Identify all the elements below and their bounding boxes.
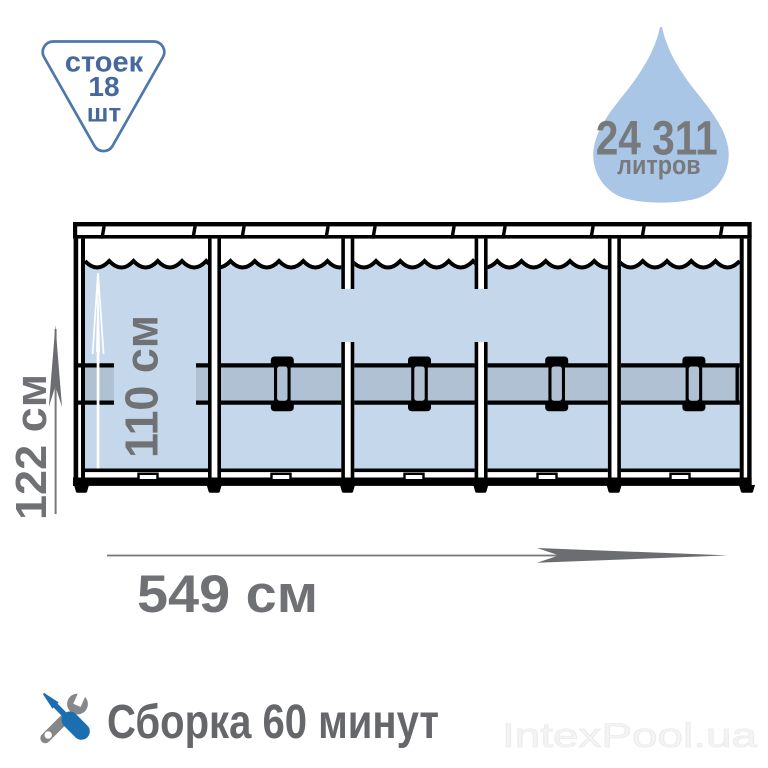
- svg-text:IntexPool.ua: IntexPool.ua: [502, 717, 757, 755]
- svg-text:122 см: 122 см: [7, 374, 56, 520]
- svg-text:110 см: 110 см: [116, 315, 168, 458]
- svg-text:549 см: 549 см: [137, 565, 318, 624]
- svg-text:литров: литров: [617, 150, 701, 180]
- svg-text:шт: шт: [87, 98, 122, 128]
- svg-text:Сборка 60 минут: Сборка 60 минут: [107, 696, 439, 749]
